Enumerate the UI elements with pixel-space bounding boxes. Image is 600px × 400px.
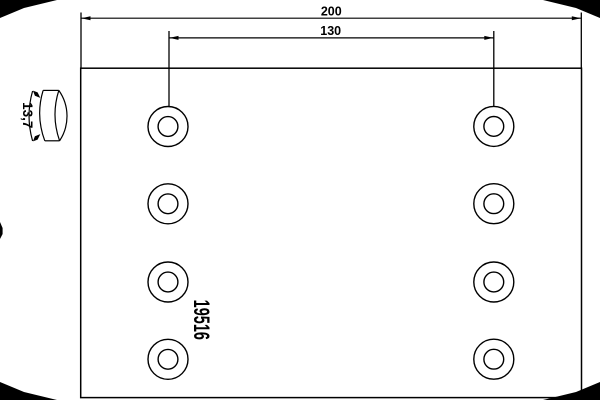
svg-text:200: 200 [321, 5, 342, 19]
svg-text:13,7: 13,7 [20, 102, 35, 128]
svg-text:130: 130 [320, 24, 341, 38]
svg-text:19516: 19516 [189, 300, 214, 340]
